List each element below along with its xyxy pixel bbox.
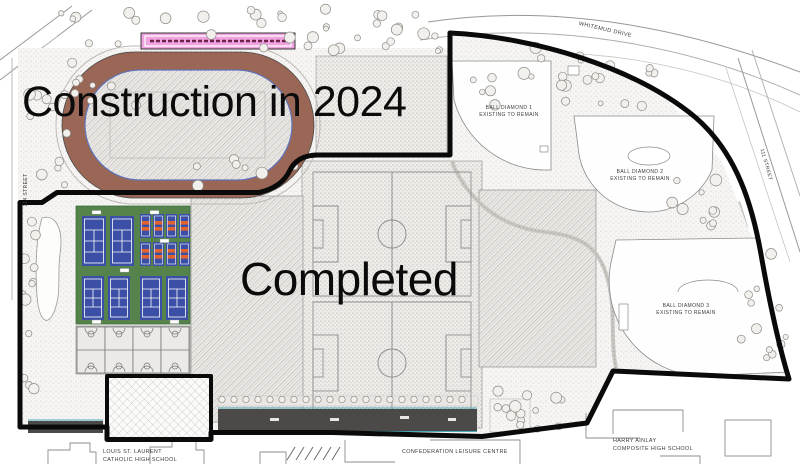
- tree-icon: [598, 101, 603, 106]
- tree-icon: [192, 180, 203, 191]
- tree-icon: [115, 41, 121, 47]
- tree-icon: [36, 169, 47, 180]
- construction-zone-label: Construction in 2024: [22, 78, 406, 126]
- tree-icon: [373, 20, 380, 27]
- tree-icon: [29, 281, 35, 287]
- tree-icon: [363, 396, 369, 402]
- harry-ainlay-label: HARRY AINLAY: [613, 438, 656, 444]
- tree-icon: [764, 355, 770, 361]
- site-plan-map: 114 STREET WHITEMUD DRIVE 111 STREET BAL…: [0, 0, 800, 464]
- tree-icon: [132, 16, 140, 24]
- tree-icon: [55, 157, 64, 166]
- tree-icon: [219, 396, 225, 402]
- harry-ainlay-building: [725, 420, 771, 456]
- tree-icon: [480, 89, 486, 95]
- tree-icon: [411, 396, 417, 402]
- tree-icon: [522, 391, 531, 400]
- basketball-courts: [76, 326, 190, 374]
- tree-icon: [355, 35, 361, 41]
- tree-icon: [324, 26, 329, 31]
- tree-icon: [748, 300, 755, 307]
- tree-icon: [766, 249, 777, 260]
- tree-icon: [307, 32, 318, 43]
- harry-ainlay-label: COMPOSITE HIGH SCHOOL: [613, 446, 693, 452]
- tree-icon: [193, 163, 200, 170]
- tree-icon: [260, 44, 268, 52]
- tree-icon: [510, 401, 522, 413]
- ball-diamond-2-label: EXISTING TO REMAIN: [610, 176, 670, 182]
- tree-icon: [646, 65, 653, 72]
- ball-diamond-3-label: BALL DIAMOND 3: [663, 303, 710, 309]
- tree-icon: [243, 396, 249, 402]
- leisure-centre-label: CONFEDERATION LEISURE CENTRE: [402, 449, 508, 455]
- tree-icon: [320, 4, 330, 14]
- future-site-crosshatched: [107, 376, 211, 439]
- tree-icon: [677, 203, 688, 214]
- parking-strip-center: [218, 409, 477, 431]
- tree-icon: [328, 45, 339, 56]
- tree-icon: [557, 80, 567, 90]
- tree-icon: [667, 197, 678, 208]
- tree-icon: [459, 396, 465, 402]
- harry-ainlay-building: [613, 410, 683, 434]
- tree-icon: [674, 177, 680, 183]
- tree-icon: [26, 330, 32, 336]
- street-111-label: 111 STREET: [759, 148, 774, 181]
- louis-school-label: LOUIS ST. LAURENT: [103, 449, 162, 455]
- tree-icon: [551, 392, 562, 403]
- tree-icon: [30, 264, 38, 272]
- street-114-label: 114 STREET: [23, 173, 29, 206]
- tree-icon: [710, 220, 717, 227]
- tree-icon: [710, 174, 722, 186]
- tree-icon: [351, 396, 357, 402]
- building-outline: [260, 452, 286, 464]
- tree-icon: [198, 11, 209, 22]
- tree-icon: [533, 408, 539, 414]
- tree-icon: [517, 421, 524, 428]
- tree-icon: [592, 73, 599, 80]
- tree-icon: [29, 384, 39, 394]
- tree-icon: [709, 207, 717, 215]
- tree-icon: [85, 40, 92, 47]
- shelter-building: [568, 66, 579, 75]
- tree-icon: [737, 335, 745, 343]
- tree-icon: [63, 129, 71, 137]
- tree-icon: [68, 58, 77, 67]
- tennis-complex: [76, 206, 190, 324]
- ball-diamond-2-label: BALL DIAMOND 2: [617, 169, 664, 175]
- tree-icon: [206, 30, 216, 40]
- tree-icon: [538, 55, 545, 62]
- tree-icon: [766, 347, 772, 353]
- tree-icon: [418, 28, 430, 40]
- tree-icon: [387, 38, 395, 46]
- tree-icon: [304, 42, 312, 50]
- tree-icon: [412, 11, 419, 18]
- tree-icon: [231, 396, 237, 402]
- tree-icon: [423, 396, 429, 402]
- tree-icon: [752, 324, 762, 334]
- tree-icon: [783, 334, 788, 339]
- tree-icon: [267, 396, 273, 402]
- tree-icon: [61, 182, 67, 188]
- tree-icon: [278, 13, 287, 22]
- tree-icon: [291, 396, 297, 402]
- building-outline: [660, 456, 700, 464]
- tree-icon: [435, 48, 440, 53]
- tree-icon: [745, 291, 753, 299]
- tree-icon: [435, 396, 441, 402]
- runway-strip: [141, 33, 295, 49]
- tree-icon: [375, 396, 381, 402]
- tree-icon: [399, 396, 405, 402]
- tree-icon: [31, 230, 41, 240]
- ball-diamond-1-label: BALL DIAMOND 1: [486, 105, 533, 111]
- tree-icon: [232, 160, 240, 168]
- ball-diamond-2-infield: [628, 147, 670, 165]
- tree-icon: [279, 396, 285, 402]
- tree-icon: [387, 396, 393, 402]
- tree-icon: [160, 13, 171, 24]
- tree-icon: [488, 73, 497, 82]
- street-111-line: [738, 58, 800, 252]
- tree-icon: [562, 97, 570, 105]
- ball-diamond-1-label: EXISTING TO REMAIN: [479, 112, 539, 118]
- tree-icon: [470, 77, 476, 83]
- louis-school-label: CATHOLIC HIGH SCHOOL: [103, 457, 177, 463]
- tree-icon: [391, 24, 402, 35]
- tree-icon: [339, 396, 345, 402]
- tree-icon: [637, 101, 646, 110]
- tree-icon: [494, 403, 502, 411]
- tree-icon: [70, 16, 76, 22]
- ball-diamond-3-label: EXISTING TO REMAIN: [656, 310, 716, 316]
- louis-school-building: [48, 443, 96, 464]
- tree-icon: [776, 304, 783, 311]
- tree-icon: [27, 217, 36, 226]
- tree-icon: [315, 396, 321, 402]
- tree-icon: [242, 165, 248, 171]
- tree-icon: [303, 396, 309, 402]
- tree-icon: [284, 32, 295, 43]
- tree-icon: [518, 67, 530, 79]
- hatch-ticks: [287, 447, 340, 460]
- tree-icon: [493, 386, 503, 396]
- tree-icon: [529, 74, 534, 79]
- tree-icon: [59, 11, 64, 16]
- tree-icon: [247, 6, 255, 14]
- tree-icon: [485, 86, 495, 96]
- tree-icon: [447, 396, 453, 402]
- tree-icon: [327, 396, 333, 402]
- tree-icon: [377, 11, 387, 21]
- tree-icon: [256, 167, 268, 179]
- tree-icon: [700, 217, 706, 223]
- bleachers: [619, 304, 628, 330]
- tree-icon: [699, 190, 704, 195]
- tree-icon: [621, 100, 629, 108]
- dugout: [540, 146, 548, 152]
- tree-icon: [754, 286, 760, 292]
- completed-zone-label: Completed: [240, 253, 458, 305]
- tree-icon: [583, 75, 592, 84]
- tree-icon: [255, 396, 261, 402]
- tree-icon: [432, 33, 438, 39]
